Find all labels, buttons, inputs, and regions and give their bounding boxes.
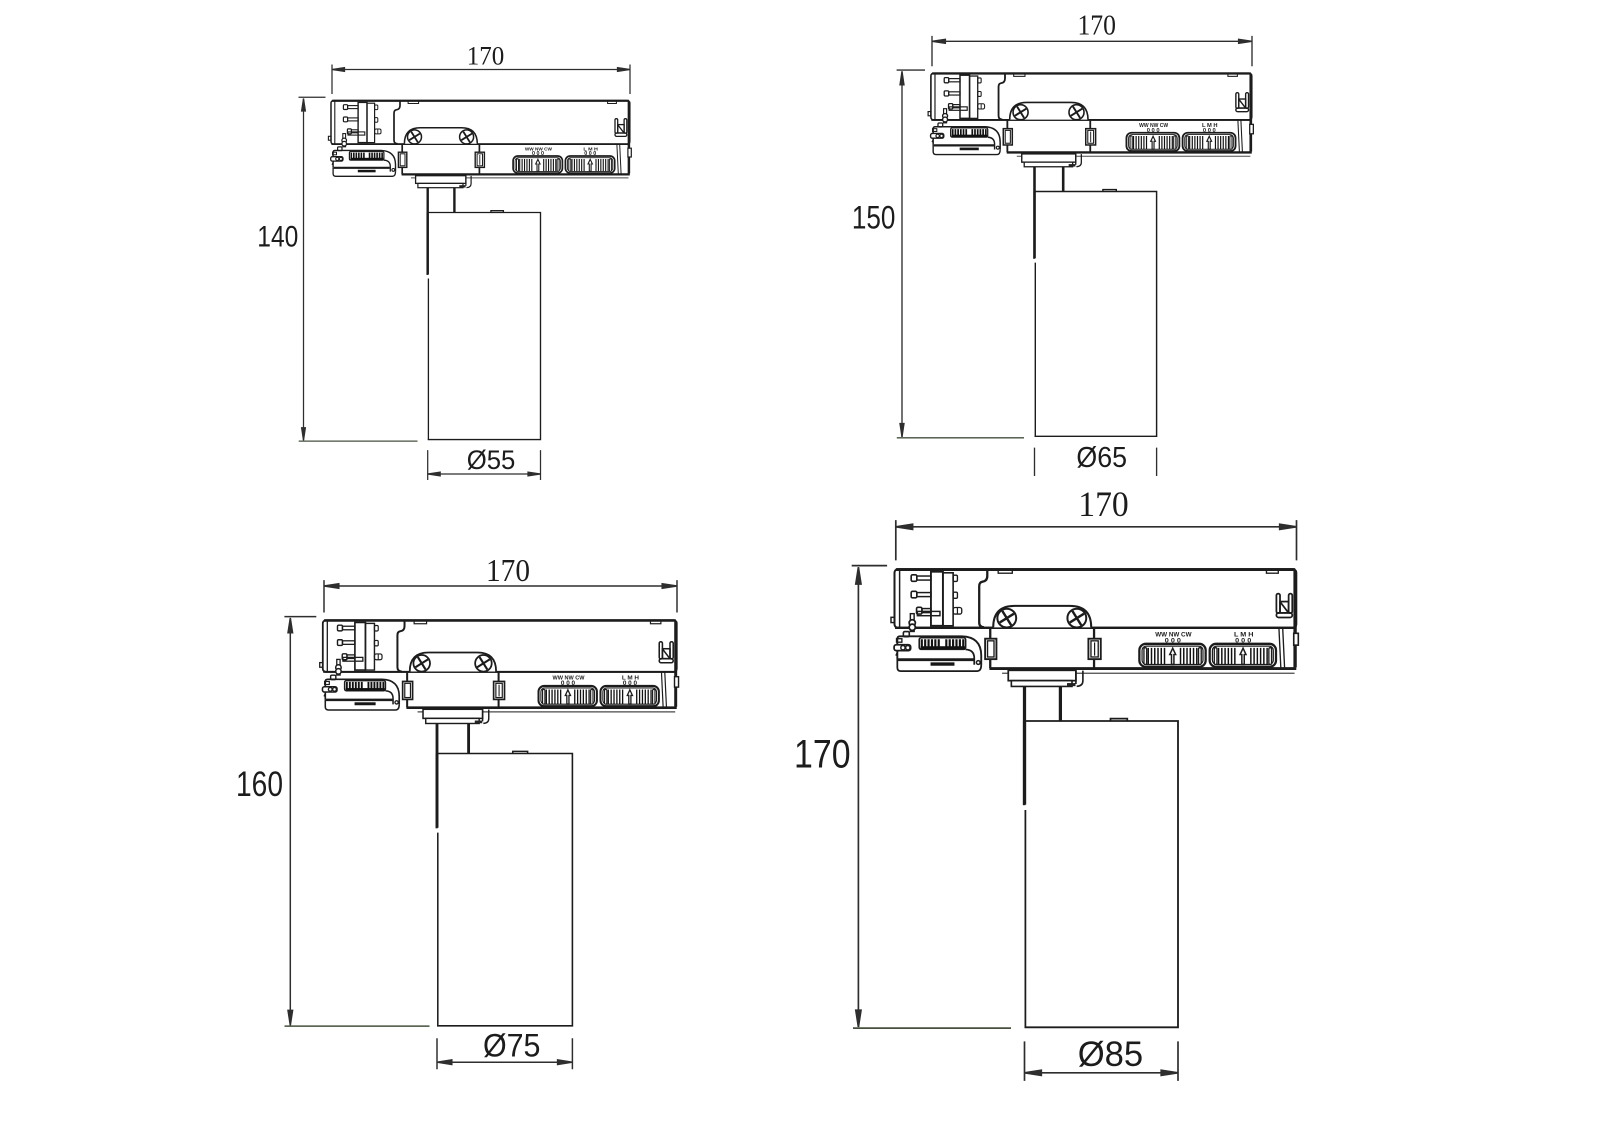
svg-text:170: 170 [1077, 10, 1116, 41]
svg-text:170: 170 [1078, 484, 1129, 524]
svg-text:Ø75: Ø75 [483, 1026, 541, 1063]
svg-text:150: 150 [852, 200, 896, 236]
svg-text:170: 170 [794, 733, 851, 777]
svg-text:140: 140 [257, 221, 298, 254]
svg-text:170: 170 [467, 41, 505, 71]
svg-text:Ø55: Ø55 [467, 445, 516, 475]
svg-text:Ø85: Ø85 [1078, 1034, 1143, 1074]
svg-text:Ø65: Ø65 [1076, 442, 1127, 474]
svg-text:160: 160 [236, 765, 283, 804]
svg-text:170: 170 [486, 553, 530, 588]
